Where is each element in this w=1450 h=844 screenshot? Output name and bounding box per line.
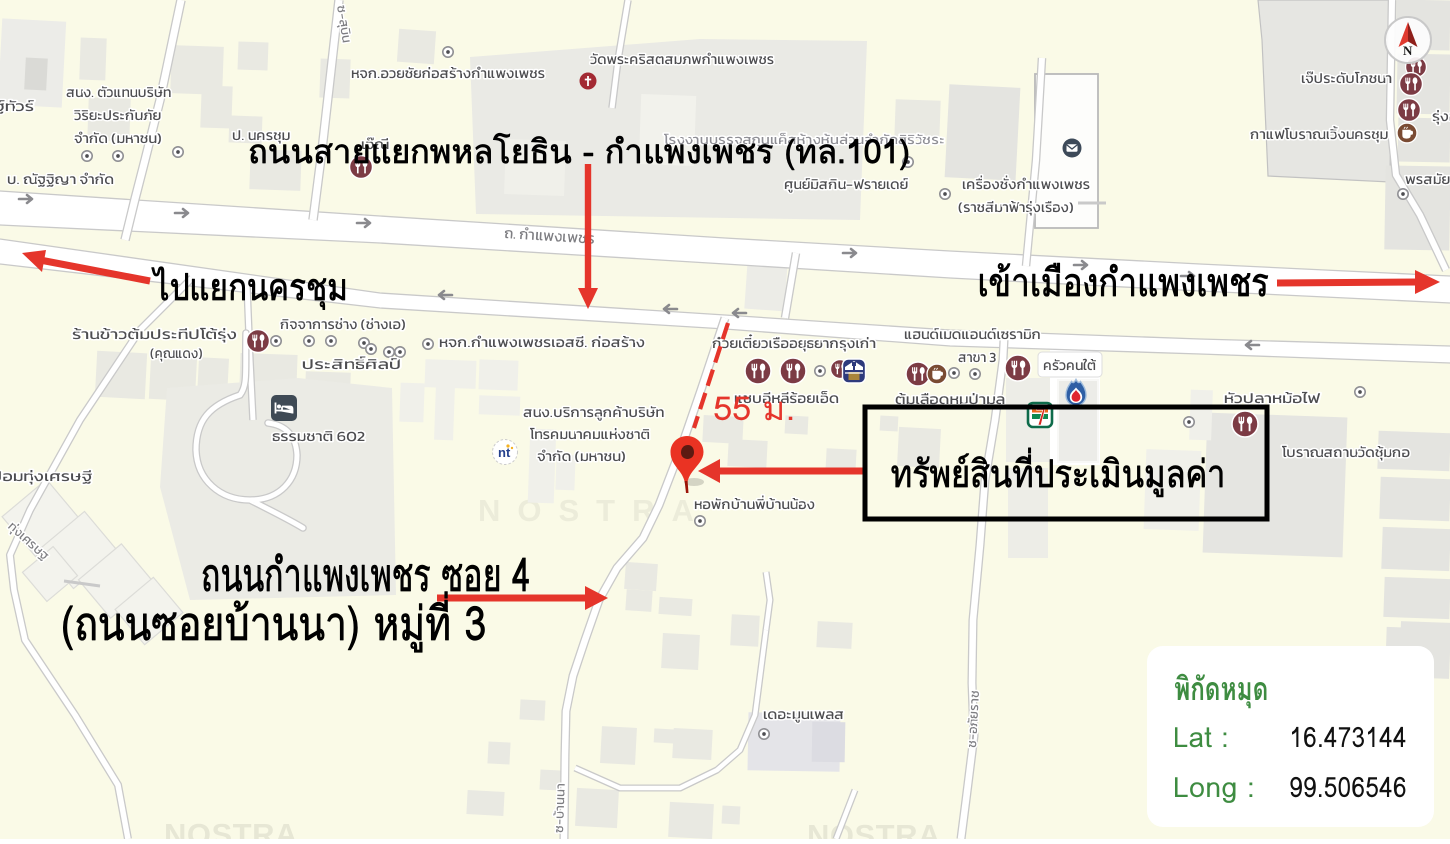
svg-text:NOSTRA: NOSTRA [807, 818, 941, 839]
svg-text:N: N [1403, 43, 1413, 58]
svg-text:NOSTRA: NOSTRA [478, 493, 711, 528]
svg-text:NOSTRA: NOSTRA [164, 817, 298, 839]
svg-text:nt: nt [498, 445, 511, 460]
